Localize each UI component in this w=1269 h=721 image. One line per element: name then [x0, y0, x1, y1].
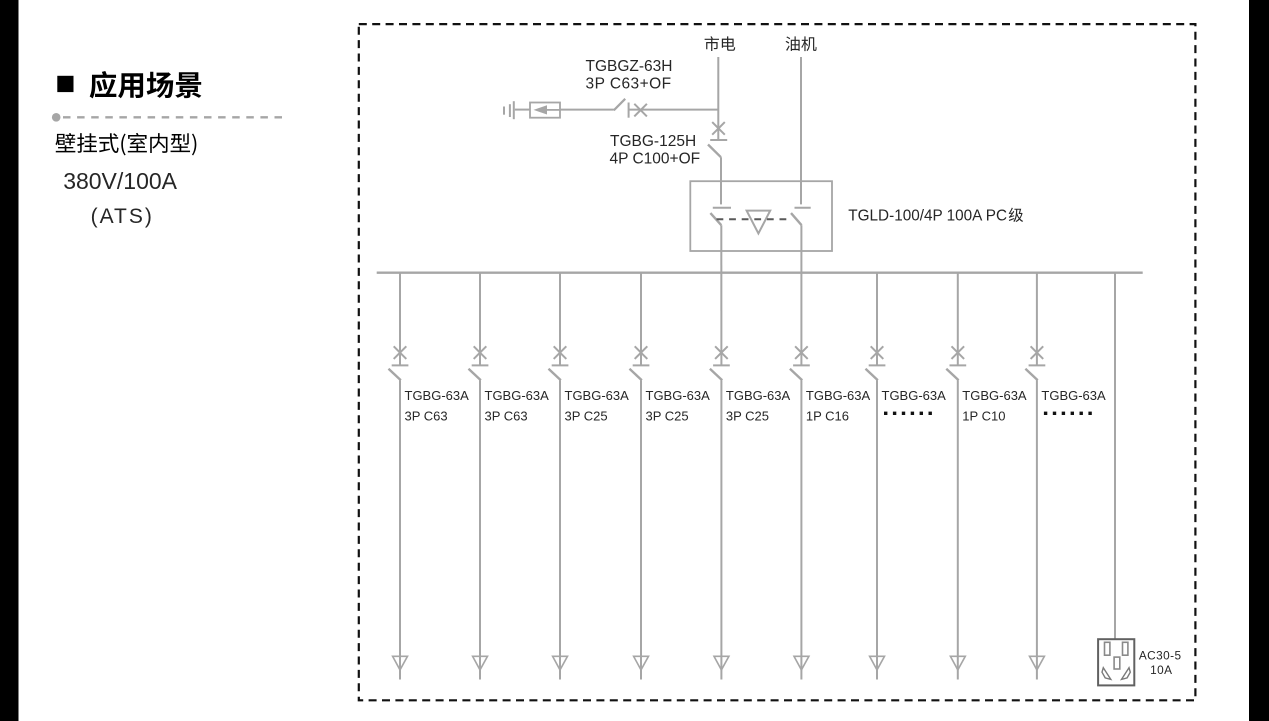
svg-text:TGBGZ-63H: TGBGZ-63H — [586, 58, 673, 75]
svg-text:10A: 10A — [1150, 663, 1172, 677]
svg-text:3P C25: 3P C25 — [646, 408, 689, 423]
svg-text:4P C100+OF: 4P C100+OF — [610, 151, 701, 168]
svg-text:380V/100A: 380V/100A — [63, 168, 177, 194]
svg-text:TGBG-63A: TGBG-63A — [565, 388, 630, 403]
svg-text:TGBG-63A: TGBG-63A — [962, 388, 1027, 403]
svg-text:TGBG-63A: TGBG-63A — [882, 388, 947, 403]
svg-text:(ATS): (ATS) — [91, 205, 154, 228]
svg-text:TGBG-63A: TGBG-63A — [405, 388, 470, 403]
svg-text:TGBG-63A: TGBG-63A — [1041, 388, 1106, 403]
svg-text:TGBG-125H: TGBG-125H — [610, 133, 696, 150]
svg-text:1P C10: 1P C10 — [962, 408, 1005, 423]
svg-text:3P C25: 3P C25 — [726, 408, 769, 423]
svg-text:3P C63+OF: 3P C63+OF — [586, 75, 672, 92]
svg-text:AC30-5: AC30-5 — [1139, 648, 1182, 662]
svg-text:1P C16: 1P C16 — [806, 408, 849, 423]
svg-text:TGBG-63A: TGBG-63A — [646, 388, 711, 403]
svg-text:TGLD-100/4P 100A PC: TGLD-100/4P 100A PC — [848, 208, 1007, 225]
svg-text:TGBG-63A: TGBG-63A — [726, 388, 791, 403]
svg-text:3P C25: 3P C25 — [565, 408, 608, 423]
svg-text:3P C63: 3P C63 — [485, 408, 528, 423]
svg-text:TGBG-63A: TGBG-63A — [806, 388, 871, 403]
svg-text:TGBG-63A: TGBG-63A — [485, 388, 550, 403]
svg-text:3P C63: 3P C63 — [405, 408, 448, 423]
